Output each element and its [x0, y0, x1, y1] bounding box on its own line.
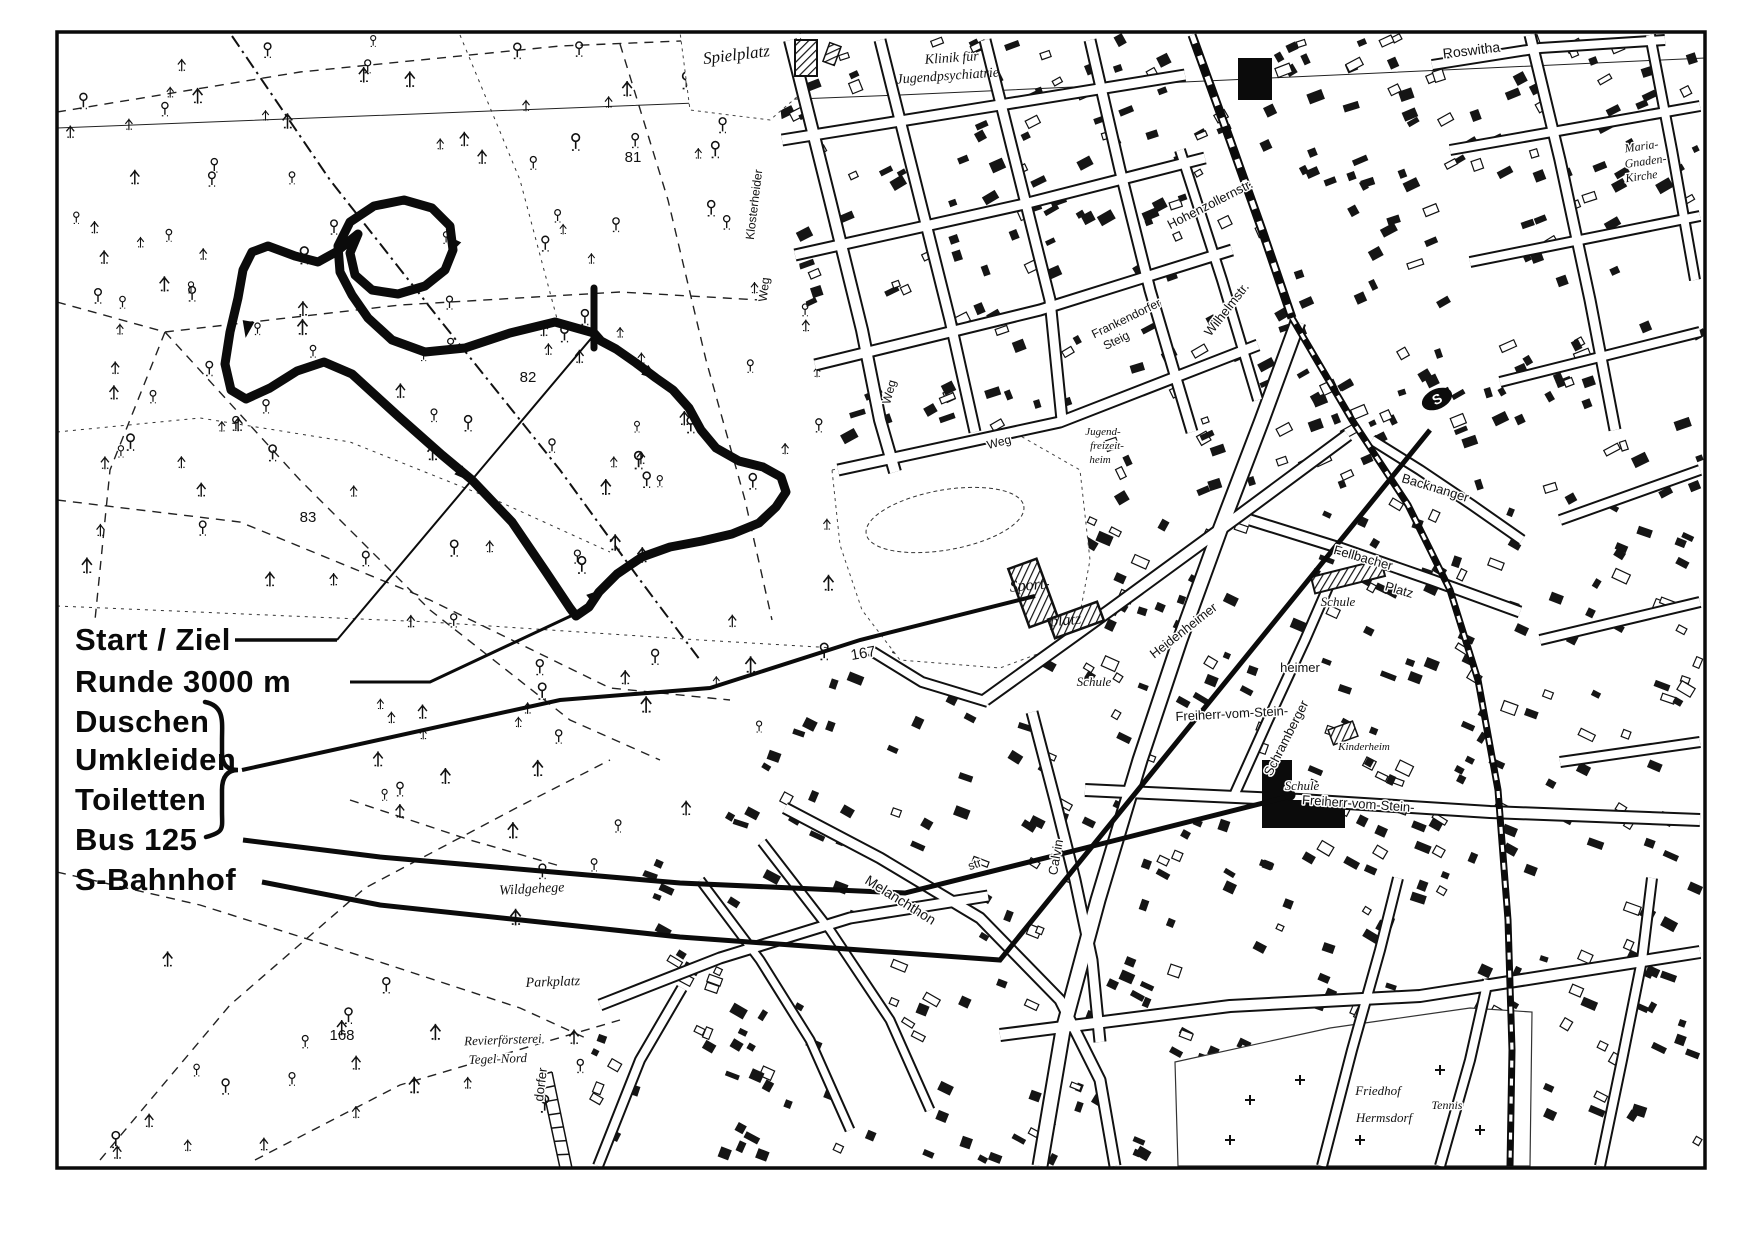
map-label: platz: [1048, 611, 1082, 631]
map-label: Revierförsterei: [463, 1031, 542, 1049]
legend-s-bahnhof: S-Bahnhof: [75, 862, 236, 897]
map-label: Sport-: [1009, 575, 1050, 595]
map-label: 168: [329, 1027, 354, 1044]
map-label: Schule: [1077, 674, 1112, 689]
legend-runde: Runde 3000 m: [75, 664, 291, 699]
map-label: Jugend-: [1085, 426, 1121, 438]
legend-bus: Bus 125: [75, 822, 197, 857]
map-label: Schule: [1321, 594, 1356, 609]
map-label: Hermsdorf: [1355, 1110, 1415, 1125]
map-label: heim: [1089, 454, 1110, 466]
map-label: Tennis: [1432, 1098, 1463, 1112]
map-label: heimer: [1280, 660, 1320, 675]
map-label: Schule: [1285, 778, 1320, 793]
map-label: Kinderheim: [1337, 741, 1390, 753]
map-label: 83: [300, 509, 317, 526]
map-label: Parkplatz: [524, 974, 580, 991]
legend-duschen: Duschen: [75, 704, 209, 739]
map-label: freizeit-: [1090, 440, 1124, 452]
legend-toiletten: Toiletten: [75, 782, 206, 817]
map-canvas: S SpielplatzKlinik fürJugendpsychiatrie8…: [0, 0, 1752, 1242]
scanned-course-map-page: S SpielplatzKlinik fürJugendpsychiatrie8…: [0, 0, 1752, 1242]
legend-start-ziel: Start / Ziel: [75, 622, 231, 657]
map-label: Tegel-Nord: [468, 1050, 527, 1067]
map-label: Weg: [756, 277, 773, 303]
legend-umkleiden: Umkleiden: [75, 742, 236, 777]
map-label: 82: [520, 369, 537, 386]
map-label: 81: [625, 149, 642, 166]
map-label: Friedhof: [1354, 1083, 1403, 1098]
